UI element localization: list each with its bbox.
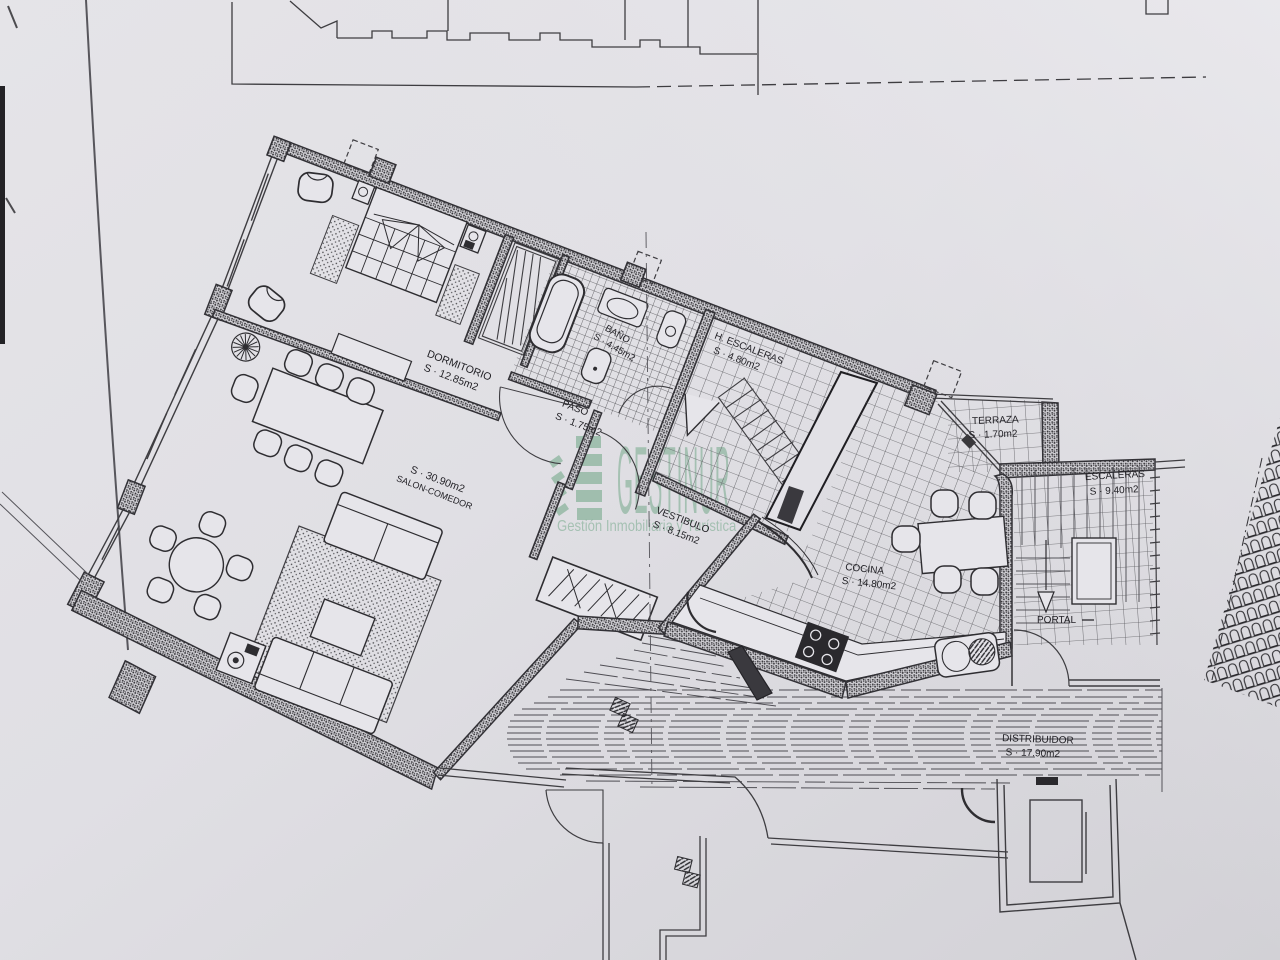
svg-text:PORTAL: PORTAL xyxy=(1037,615,1077,626)
svg-text:TERRAZA: TERRAZA xyxy=(972,414,1019,427)
svg-text:S · 17.90m2: S · 17.90m2 xyxy=(1005,747,1060,760)
svg-text:S · 1.70m2: S · 1.70m2 xyxy=(968,429,1018,442)
